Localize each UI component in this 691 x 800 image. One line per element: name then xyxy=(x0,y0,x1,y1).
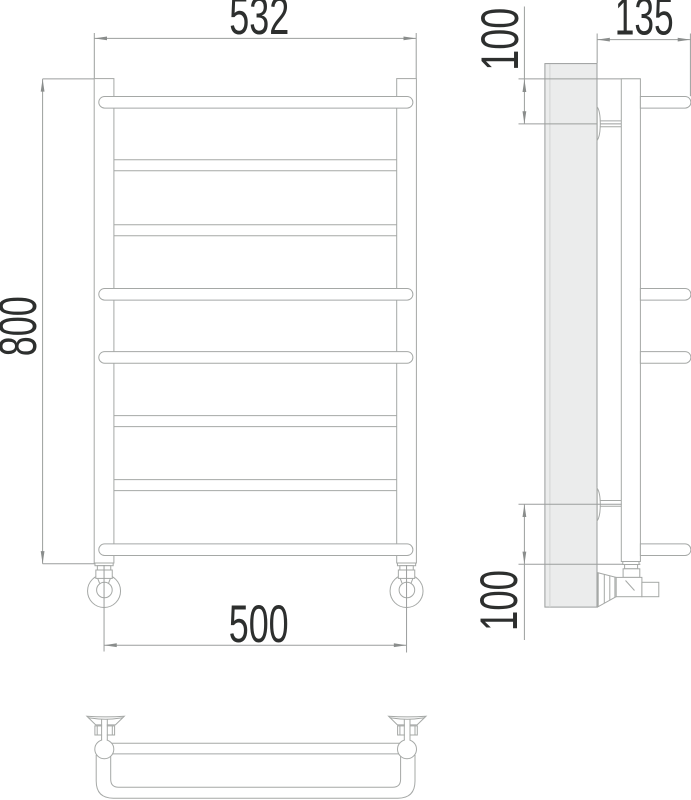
svg-text:800: 800 xyxy=(0,296,48,356)
svg-text:532: 532 xyxy=(229,0,289,46)
svg-text:135: 135 xyxy=(615,0,674,47)
svg-text:500: 500 xyxy=(229,595,289,654)
svg-text:100: 100 xyxy=(471,8,530,71)
svg-text:100: 100 xyxy=(470,570,529,631)
